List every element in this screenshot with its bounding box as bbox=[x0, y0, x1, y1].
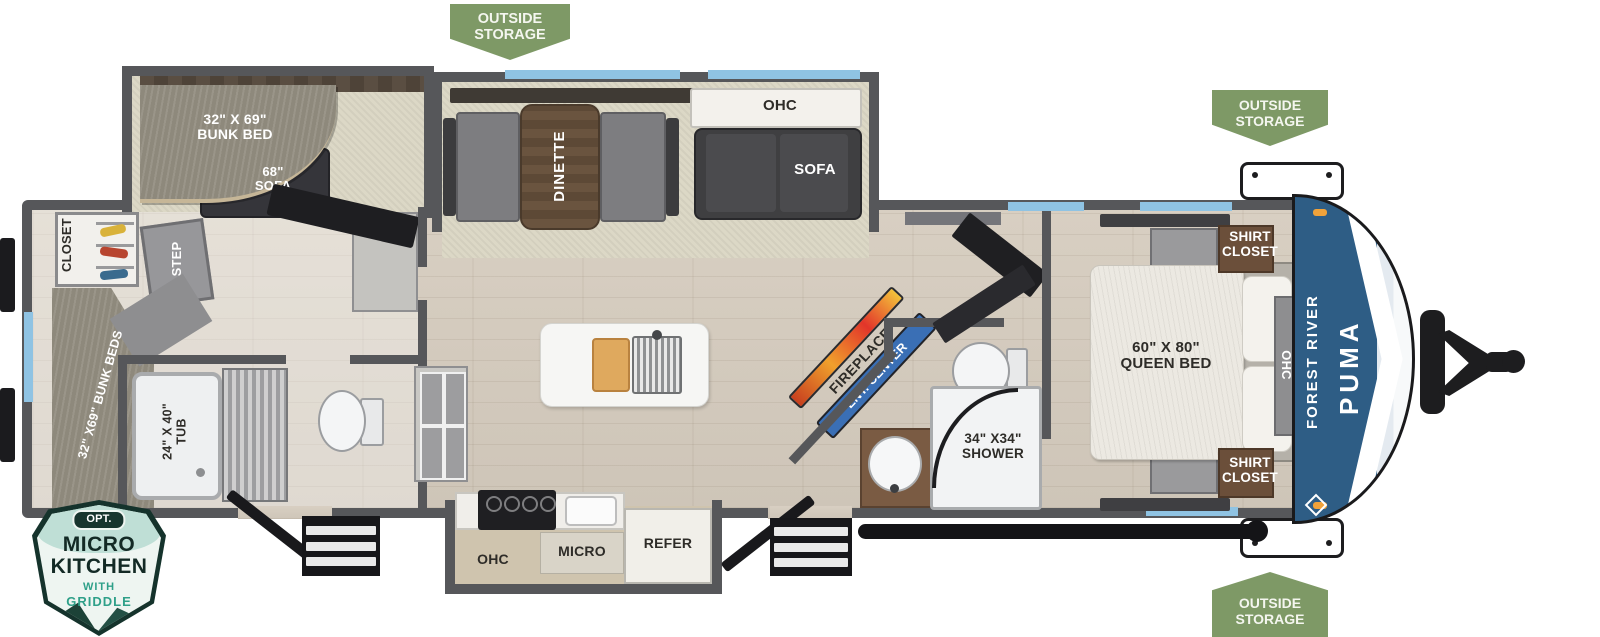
pantry-drawer-3 bbox=[420, 426, 444, 480]
outside-storage-badge-front-top: OUTSIDE STORAGE bbox=[1212, 90, 1328, 146]
bath-sink-faucet bbox=[890, 484, 899, 493]
dinette-armrest-right bbox=[666, 118, 679, 216]
floorplan-canvas: 32" X 69" BUNK BED 68" SOFA DINETTE OHC … bbox=[0, 0, 1600, 637]
stove-burner-3 bbox=[522, 496, 538, 512]
bedroom-ohc-label: OHC bbox=[1279, 337, 1293, 393]
pantry-drawer-1 bbox=[420, 372, 444, 426]
badge-sub-1: WITH bbox=[32, 582, 166, 594]
pantry-drawer-4 bbox=[444, 426, 466, 480]
island-faucet bbox=[652, 330, 662, 340]
step-tread bbox=[774, 527, 848, 536]
step-tread bbox=[774, 558, 848, 567]
living-sofa-cushion-left bbox=[706, 134, 776, 212]
dinette-slide-wall-left bbox=[432, 72, 442, 232]
window-strip-bedroom-top bbox=[1140, 202, 1232, 211]
closet-shelf-3 bbox=[96, 266, 134, 269]
left-entry-steps bbox=[302, 516, 380, 576]
living-ohc-label: OHC bbox=[740, 98, 820, 114]
kitchen-slide-wall-right bbox=[712, 500, 722, 594]
queen-bed-label: 60" X 80" QUEEN BED bbox=[1100, 340, 1232, 372]
dinette-bench-right bbox=[600, 112, 666, 222]
kitchen-ohc-label: OHC bbox=[458, 552, 528, 567]
badge-title-1: MICRO bbox=[32, 534, 166, 557]
micro-kitchen-badge: OPT. MICRO KITCHEN WITH GRIDDLE bbox=[32, 500, 166, 636]
shirt-closet-top-label: SHIRT CLOSET bbox=[1200, 230, 1300, 259]
badge-title-2: KITCHEN bbox=[32, 556, 166, 579]
shirt-closet-bottom-label: SHIRT CLOSET bbox=[1200, 456, 1300, 485]
tub-surround bbox=[222, 368, 288, 502]
kitchen-sink-basin bbox=[565, 496, 617, 526]
outside-storage-badge-top: OUTSIDE STORAGE bbox=[450, 4, 570, 60]
tubroom-wall-top-2 bbox=[350, 355, 427, 364]
badge-opt-pill: OPT. bbox=[72, 510, 125, 530]
window-strip-hall-top bbox=[1008, 202, 1084, 211]
living-carpet bbox=[442, 232, 869, 258]
tub-label: 24" X 40" TUB bbox=[162, 377, 189, 487]
island-cutting-board bbox=[592, 338, 630, 392]
bunk-slide-wall-top bbox=[122, 66, 434, 76]
bunk-bed-label: 32" X 69" BUNK BED bbox=[165, 112, 305, 142]
cap-marker-light-top bbox=[1313, 209, 1327, 216]
closet-label: CLOSET bbox=[60, 206, 74, 284]
kitchen-slide-wall-bottom bbox=[445, 584, 722, 594]
awning-bar bbox=[858, 524, 1258, 539]
bedroom-ohc-top-strip bbox=[1100, 214, 1230, 227]
step-tread bbox=[306, 526, 376, 535]
forest-river-diamond-icon bbox=[1305, 494, 1328, 517]
tubroom-wall-top-1 bbox=[118, 355, 286, 364]
frame-rail-bottom-bolt-2 bbox=[1326, 540, 1332, 546]
kitchen-slide-wall-left bbox=[445, 500, 455, 594]
outside-storage-badge-front-bottom: OUTSIDE STORAGE bbox=[1212, 572, 1328, 637]
step-tread bbox=[306, 542, 376, 551]
bedroom-ohc-bottom-strip bbox=[1100, 498, 1230, 511]
dinette-bench-left bbox=[456, 112, 520, 222]
awning-bar-endcap bbox=[1246, 520, 1268, 542]
living-sofa-label: SOFA bbox=[775, 162, 855, 178]
pantry-drawer-2 bbox=[444, 372, 466, 426]
stove-burner-2 bbox=[504, 496, 520, 512]
shower-label: 34" X34" SHOWER bbox=[948, 432, 1038, 461]
window-strip-rear bbox=[24, 312, 33, 402]
stove-burner-1 bbox=[486, 496, 502, 512]
hitch-coupler-knob bbox=[1502, 350, 1525, 373]
front-cap: FOREST RIVER PUMA bbox=[1292, 194, 1415, 524]
rear-bumper-upper bbox=[0, 238, 15, 312]
right-entry-steps bbox=[770, 518, 852, 576]
hitch-crossbar bbox=[1420, 310, 1445, 414]
refer-label: REFER bbox=[630, 536, 706, 551]
window-strip-dinette-2 bbox=[708, 70, 860, 79]
bedroom-wall bbox=[1042, 207, 1051, 439]
rear-bumper-lower bbox=[0, 388, 15, 462]
frame-rail-top-bolt-1 bbox=[1252, 172, 1258, 178]
hall-cabinet-strip bbox=[905, 212, 1001, 225]
step-tread bbox=[306, 557, 376, 566]
stove-burner-4 bbox=[540, 496, 556, 512]
dinette-label: DINETTE bbox=[552, 96, 568, 236]
cap-brand-model: PUMA bbox=[1335, 267, 1363, 467]
badge-sub-2: GRIDDLE bbox=[32, 595, 166, 609]
island-sink bbox=[632, 336, 682, 394]
bunk-slide-wall-left bbox=[122, 66, 132, 218]
tubroom-wall-left bbox=[118, 355, 127, 512]
dinette-header-shelf bbox=[450, 88, 718, 103]
cap-brand-manufacturer: FOREST RIVER bbox=[1305, 237, 1321, 487]
step-tread bbox=[774, 543, 848, 552]
dinette-slide-wall-right bbox=[869, 72, 879, 232]
tub-drain bbox=[196, 468, 205, 477]
dinette-armrest-left bbox=[443, 118, 456, 216]
micro-label: MICRO bbox=[542, 544, 622, 559]
window-strip-dinette-1 bbox=[505, 70, 680, 79]
frame-rail-top-bolt-2 bbox=[1326, 172, 1332, 178]
rear-toilet-bowl bbox=[318, 390, 366, 452]
bunkroom-wall-upper bbox=[418, 207, 427, 267]
